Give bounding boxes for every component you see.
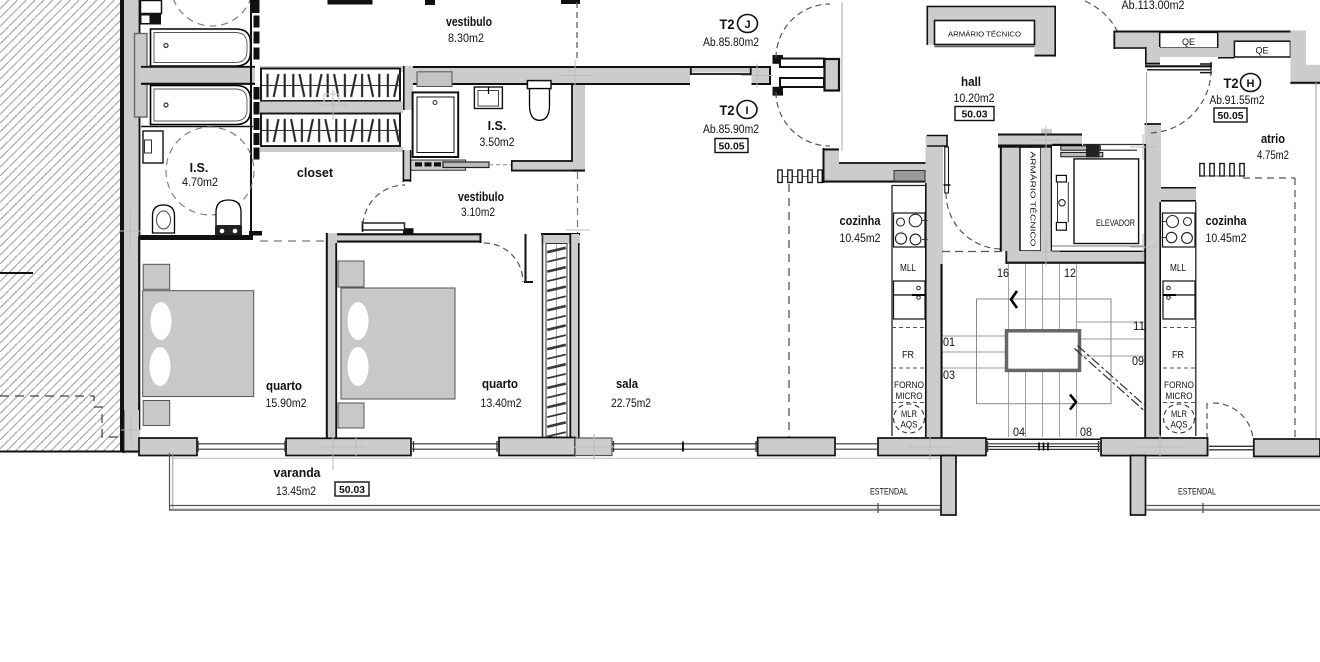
svg-text:50.03: 50.03 [339, 484, 365, 496]
svg-text:quarto: quarto [266, 379, 302, 393]
svg-text:ARMÁRIO TÉCNICO: ARMÁRIO TÉCNICO [948, 30, 1022, 39]
svg-text:vestibulo: vestibulo [446, 15, 492, 29]
svg-text:cozinha: cozinha [1206, 214, 1248, 228]
svg-text:ESTENDAL: ESTENDAL [1178, 487, 1216, 497]
svg-text:MLR: MLR [1171, 409, 1187, 419]
svg-text:4.70m2: 4.70m2 [182, 177, 218, 189]
svg-text:3.50m2: 3.50m2 [480, 137, 515, 149]
svg-text:closet: closet [297, 166, 334, 180]
svg-text:13.40m2: 13.40m2 [481, 398, 522, 410]
svg-text:10.20m2: 10.20m2 [954, 93, 995, 105]
svg-text:16: 16 [997, 268, 1009, 280]
svg-text:11: 11 [1133, 321, 1145, 333]
svg-text:AQS: AQS [1171, 420, 1188, 430]
svg-text:Ab.85.90m2: Ab.85.90m2 [703, 124, 759, 136]
svg-text:ESTENDAL: ESTENDAL [870, 487, 908, 497]
svg-text:50.05: 50.05 [719, 141, 745, 153]
svg-text:vestibulo: vestibulo [458, 190, 504, 204]
svg-text:quarto: quarto [482, 377, 518, 391]
svg-text:15.90m2: 15.90m2 [266, 398, 307, 410]
svg-text:MLL: MLL [900, 263, 916, 274]
svg-text:sala: sala [616, 377, 639, 391]
svg-text:I.S.: I.S. [190, 161, 209, 175]
svg-text:10.45m2: 10.45m2 [1206, 233, 1247, 245]
svg-text:FORNO: FORNO [1164, 380, 1194, 391]
svg-text:MICRO: MICRO [1166, 391, 1193, 402]
svg-text:Ab.85.80m2: Ab.85.80m2 [703, 37, 759, 49]
svg-text:01: 01 [943, 337, 955, 349]
svg-text:H: H [1247, 78, 1255, 90]
svg-text:MLR: MLR [901, 409, 917, 419]
svg-text:MLL: MLL [1170, 263, 1186, 274]
svg-text:ELEVADOR: ELEVADOR [1096, 218, 1135, 228]
svg-text:varanda: varanda [274, 466, 322, 480]
svg-text:cozinha: cozinha [840, 214, 882, 228]
svg-text:AQS: AQS [901, 420, 918, 430]
svg-text:22.75m2: 22.75m2 [611, 398, 651, 410]
svg-text:atrio: atrio [1261, 132, 1285, 146]
svg-text:FR: FR [1172, 350, 1184, 361]
svg-text:03: 03 [943, 370, 955, 382]
svg-text:QE: QE [1256, 46, 1269, 57]
svg-text:4.75m2: 4.75m2 [1257, 150, 1289, 162]
svg-text:QE: QE [1182, 37, 1195, 48]
svg-text:08: 08 [1080, 427, 1092, 439]
svg-text:10.45m2: 10.45m2 [840, 233, 881, 245]
svg-text:12: 12 [1064, 268, 1076, 280]
svg-text:I.S.: I.S. [488, 119, 507, 133]
svg-text:T2: T2 [720, 17, 735, 32]
svg-text:FORNO: FORNO [894, 380, 924, 391]
svg-text:hall: hall [961, 75, 981, 89]
svg-text:13.45m2: 13.45m2 [276, 486, 316, 498]
svg-text:ARMÁRIO TÉCNICO: ARMÁRIO TÉCNICO [1029, 152, 1038, 247]
svg-text:09: 09 [1132, 356, 1144, 368]
svg-text:Ab.113.00m2: Ab.113.00m2 [1122, 0, 1185, 12]
svg-text:3.10m2: 3.10m2 [461, 207, 495, 219]
svg-text:J: J [744, 19, 750, 31]
svg-text:50.03: 50.03 [962, 109, 988, 121]
svg-text:FR: FR [902, 350, 914, 361]
svg-text:Ab.91.55m2: Ab.91.55m2 [1210, 95, 1265, 107]
svg-text:I: I [745, 105, 748, 117]
svg-text:50.05: 50.05 [1218, 110, 1244, 122]
svg-text:04: 04 [1013, 427, 1026, 439]
svg-text:T2: T2 [1224, 76, 1239, 91]
svg-text:8.30m2: 8.30m2 [448, 33, 484, 45]
svg-text:MICRO: MICRO [896, 391, 923, 402]
svg-text:T2: T2 [720, 103, 735, 118]
